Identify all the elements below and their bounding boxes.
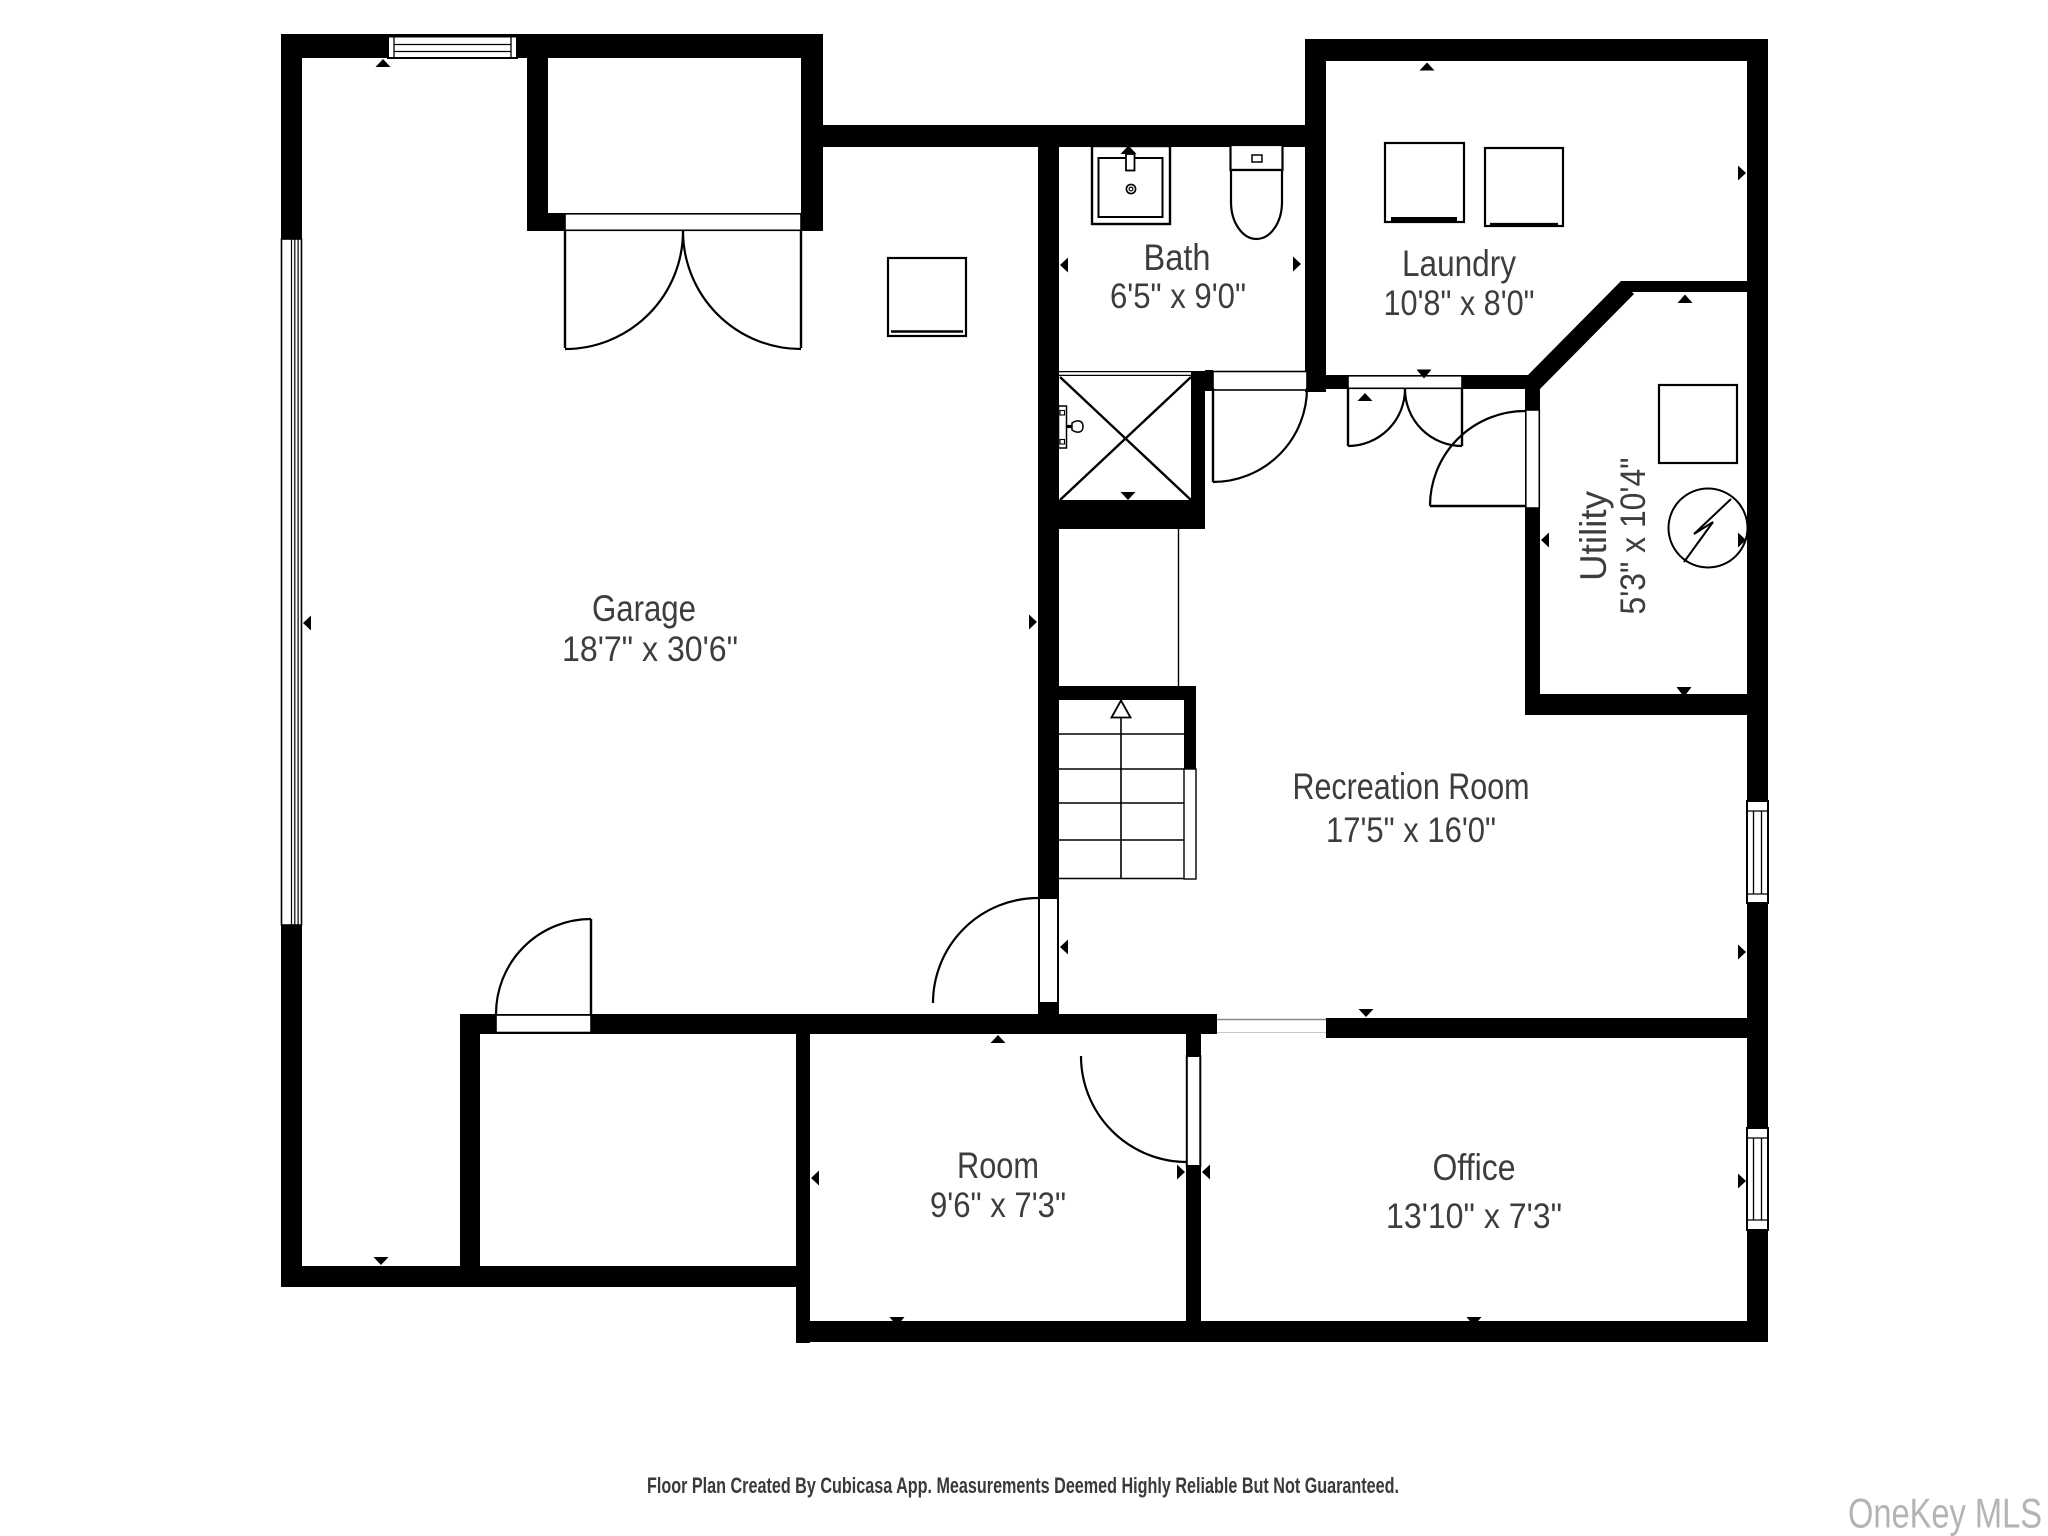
svg-text:5'3" x 10'4": 5'3" x 10'4" — [1614, 458, 1653, 615]
svg-text:Laundry: Laundry — [1402, 243, 1516, 284]
svg-text:Utility: Utility — [1573, 491, 1614, 581]
svg-text:17'5" x 16'0": 17'5" x 16'0" — [1326, 811, 1496, 850]
svg-text:OneKey MLS: OneKey MLS — [1848, 1490, 2042, 1536]
svg-text:9'6" x 7'3": 9'6" x 7'3" — [930, 1186, 1066, 1225]
svg-text:10'8" x 8'0": 10'8" x 8'0" — [1384, 284, 1535, 323]
svg-text:13'10" x 7'3": 13'10" x 7'3" — [1386, 1197, 1562, 1236]
svg-text:Bath: Bath — [1144, 237, 1211, 278]
svg-text:Garage: Garage — [592, 588, 696, 629]
svg-text:Floor Plan Created By Cubicasa: Floor Plan Created By Cubicasa App. Meas… — [647, 1473, 1399, 1498]
svg-text:Room: Room — [957, 1145, 1039, 1186]
svg-text:Office: Office — [1433, 1147, 1516, 1188]
svg-text:6'5" x 9'0": 6'5" x 9'0" — [1110, 277, 1246, 316]
svg-text:18'7" x 30'6": 18'7" x 30'6" — [562, 630, 738, 669]
svg-text:Recreation Room: Recreation Room — [1293, 766, 1530, 807]
